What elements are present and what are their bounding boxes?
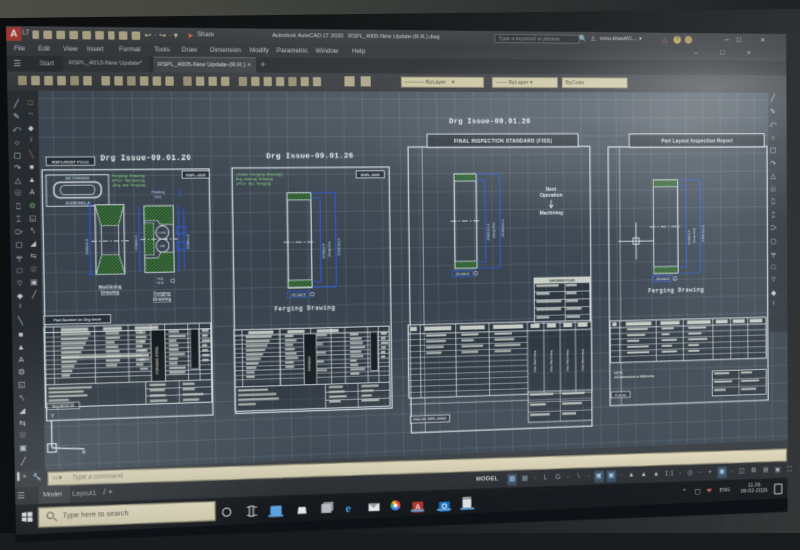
svg-text:∅1.0±0.5: ∅1.0±0.5: [291, 293, 305, 297]
svg-text:∅1.0±0.5: ∅1.0±0.5: [456, 272, 470, 276]
svg-text:(Final Forging Drawing): (Final Forging Drawing): [236, 173, 283, 178]
svg-text:PLIR NO: PLIR NO: [615, 393, 627, 397]
svg-text:FORGING: FORGING: [308, 356, 312, 371]
svg-text:Drawing: Drawing: [101, 290, 120, 296]
svg-text:∅1.0±0.5: ∅1.0±0.5: [656, 277, 669, 281]
svg-text:∅165±1.5: ∅165±1.5: [85, 239, 89, 255]
svg-text:After Machining: After Machining: [566, 349, 570, 371]
svg-text:RSPL/RSST Press: RSPL/RSST Press: [52, 159, 90, 164]
svg-text:Forging Drawing: Forging Drawing: [274, 305, 335, 313]
svg-text:Forging Drawing: Forging Drawing: [112, 174, 145, 179]
svg-text:after Die Forging: after Die Forging: [236, 182, 271, 187]
svg-text:FINAL INSPECTION STANDARD (FIS: FINAL INSPECTION STANDARD (FISS): [454, 139, 552, 145]
svg-text:∅158±1.0: ∅158±1.0: [687, 230, 691, 244]
svg-text:∅158±1.5: ∅158±1.5: [186, 235, 190, 250]
svg-text:Y: Y: [50, 414, 54, 420]
svg-text:∅160±1.5: ∅160±1.5: [134, 235, 138, 250]
svg-text:Part Layout Inspection Report: Part Layout Inspection Report: [661, 139, 733, 145]
svg-text:After Machining: After Machining: [533, 350, 537, 372]
svg-text:Drg Asking Drawing: Drg Asking Drawing: [236, 177, 273, 182]
svg-text:Next: Next: [546, 187, 557, 193]
svg-text:RSPL-4005: RSPL-4005: [361, 172, 381, 177]
svg-text:RSPL-4005: RSPL-4005: [186, 172, 207, 177]
svg-text:Drg Issue-09.01.26: Drg Issue-09.01.26: [266, 152, 353, 161]
svg-text:(Snap Dia): (Snap Dia): [693, 228, 697, 243]
svg-text:All Dimensions in Millimeter: All Dimensions in Millimeter: [614, 374, 655, 379]
svg-text:GAUGING PLAN: GAUGING PLAN: [549, 279, 575, 283]
svg-text:line: line: [155, 194, 162, 199]
svg-text:DIE FORGING: DIE FORGING: [65, 176, 89, 180]
svg-text:Machining: Machining: [98, 284, 121, 290]
svg-text:∅158±1.0: ∅158±1.0: [322, 244, 326, 259]
svg-text:Drawing: Drawing: [153, 297, 171, 303]
svg-text:(Snap Dia): (Snap Dia): [492, 223, 496, 238]
svg-text:FORGING STEEL: FORGING STEEL: [155, 345, 159, 374]
svg-text:+1.5: +1.5: [156, 281, 163, 285]
svg-text:Operation: Operation: [540, 193, 563, 199]
svg-text:(30): (30): [160, 244, 165, 248]
svg-text:(Drg and Forging): (Drg and Forging): [112, 183, 147, 188]
svg-text:∅160.5±1.0: ∅160.5±1.0: [337, 238, 341, 256]
svg-text:×: ×: [81, 447, 86, 457]
svg-text:After Machining: After Machining: [549, 350, 553, 372]
svg-text:Drg Issue-09.01.26: Drg Issue-09.01.26: [100, 154, 191, 163]
svg-text:Machining: Machining: [539, 211, 563, 217]
svg-text:Forging: Forging: [153, 291, 170, 297]
svg-text:After Machining: After Machining: [581, 349, 585, 371]
svg-text:∅160.5±1.0: ∅160.5±1.0: [701, 225, 705, 242]
svg-text:(+10): (+10): [159, 231, 166, 235]
svg-text:After Machining: After Machining: [112, 179, 145, 184]
svg-text:NOTE:: NOTE:: [614, 371, 623, 375]
svg-text:Drg 09-01-26: Drg 09-01-26: [52, 404, 74, 409]
svg-text:∅158.5-1.0: ∅158.5-1.0: [487, 224, 491, 241]
svg-text:(Snap Dia): (Snap Dia): [327, 241, 331, 256]
svg-text:Drg Issue-09.01.26: Drg Issue-09.01.26: [449, 118, 531, 126]
svg-text:Forging Drawing: Forging Drawing: [648, 287, 704, 294]
svg-text:∅160.5±1.0: ∅160.5±1.0: [501, 219, 505, 236]
